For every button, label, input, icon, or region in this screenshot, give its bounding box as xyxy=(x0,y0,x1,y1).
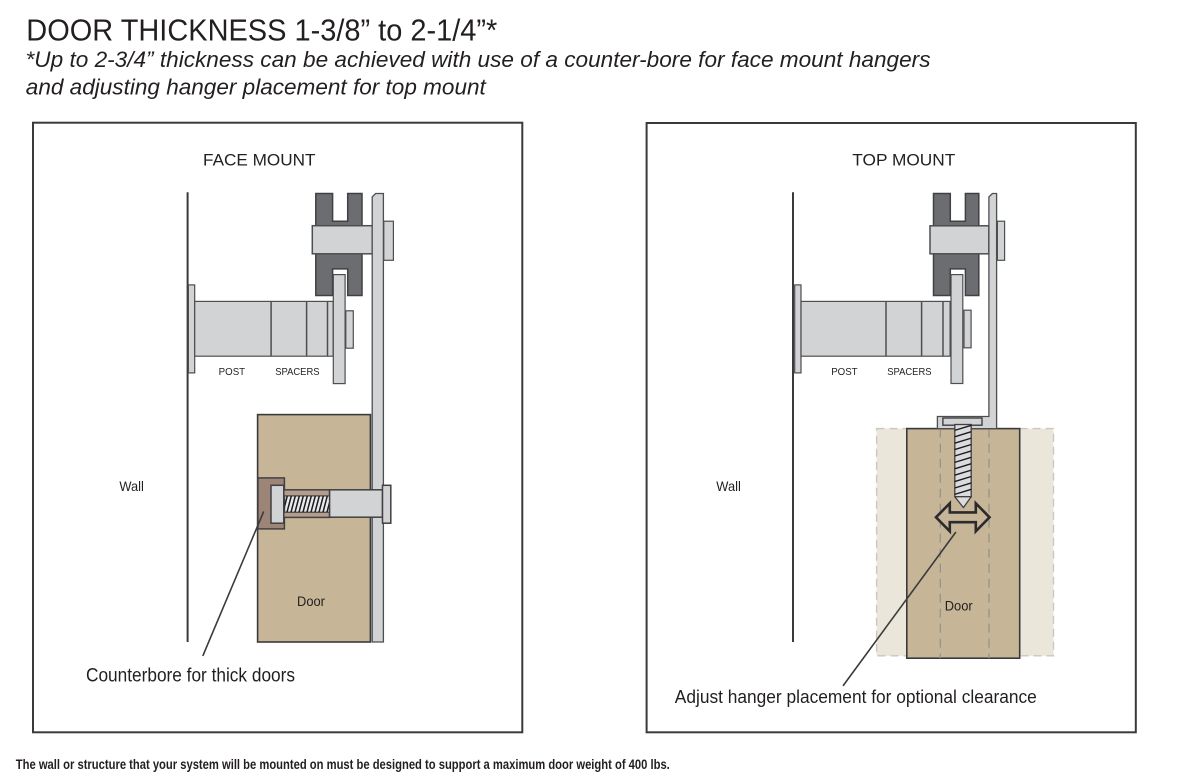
svg-text:*Up to 2-3/4” thickness can be: *Up to 2-3/4” thickness can be achieved … xyxy=(26,47,931,72)
svg-text:and adjusting hanger placement: and adjusting hanger placement for top m… xyxy=(26,75,488,100)
svg-text:Wall: Wall xyxy=(716,478,741,494)
svg-text:SPACERS: SPACERS xyxy=(887,367,932,378)
svg-text:Door: Door xyxy=(297,593,325,609)
svg-text:Door: Door xyxy=(945,598,973,614)
svg-text:TOP MOUNT: TOP MOUNT xyxy=(852,150,955,169)
svg-text:POST: POST xyxy=(831,367,857,378)
svg-text:SPACERS: SPACERS xyxy=(275,367,320,378)
svg-text:Counterbore for thick doors: Counterbore for thick doors xyxy=(86,666,295,687)
svg-text:The wall or structure that you: The wall or structure that your system w… xyxy=(16,756,670,772)
svg-text:FACE MOUNT: FACE MOUNT xyxy=(203,150,316,169)
svg-text:POST: POST xyxy=(219,367,245,378)
svg-text:Adjust hanger placement for op: Adjust hanger placement for optional cle… xyxy=(675,686,1037,707)
svg-text:Wall: Wall xyxy=(119,478,143,494)
svg-text:DOOR THICKNESS 1-3/8” to 2-1/4: DOOR THICKNESS 1-3/8” to 2-1/4”* xyxy=(26,14,497,48)
